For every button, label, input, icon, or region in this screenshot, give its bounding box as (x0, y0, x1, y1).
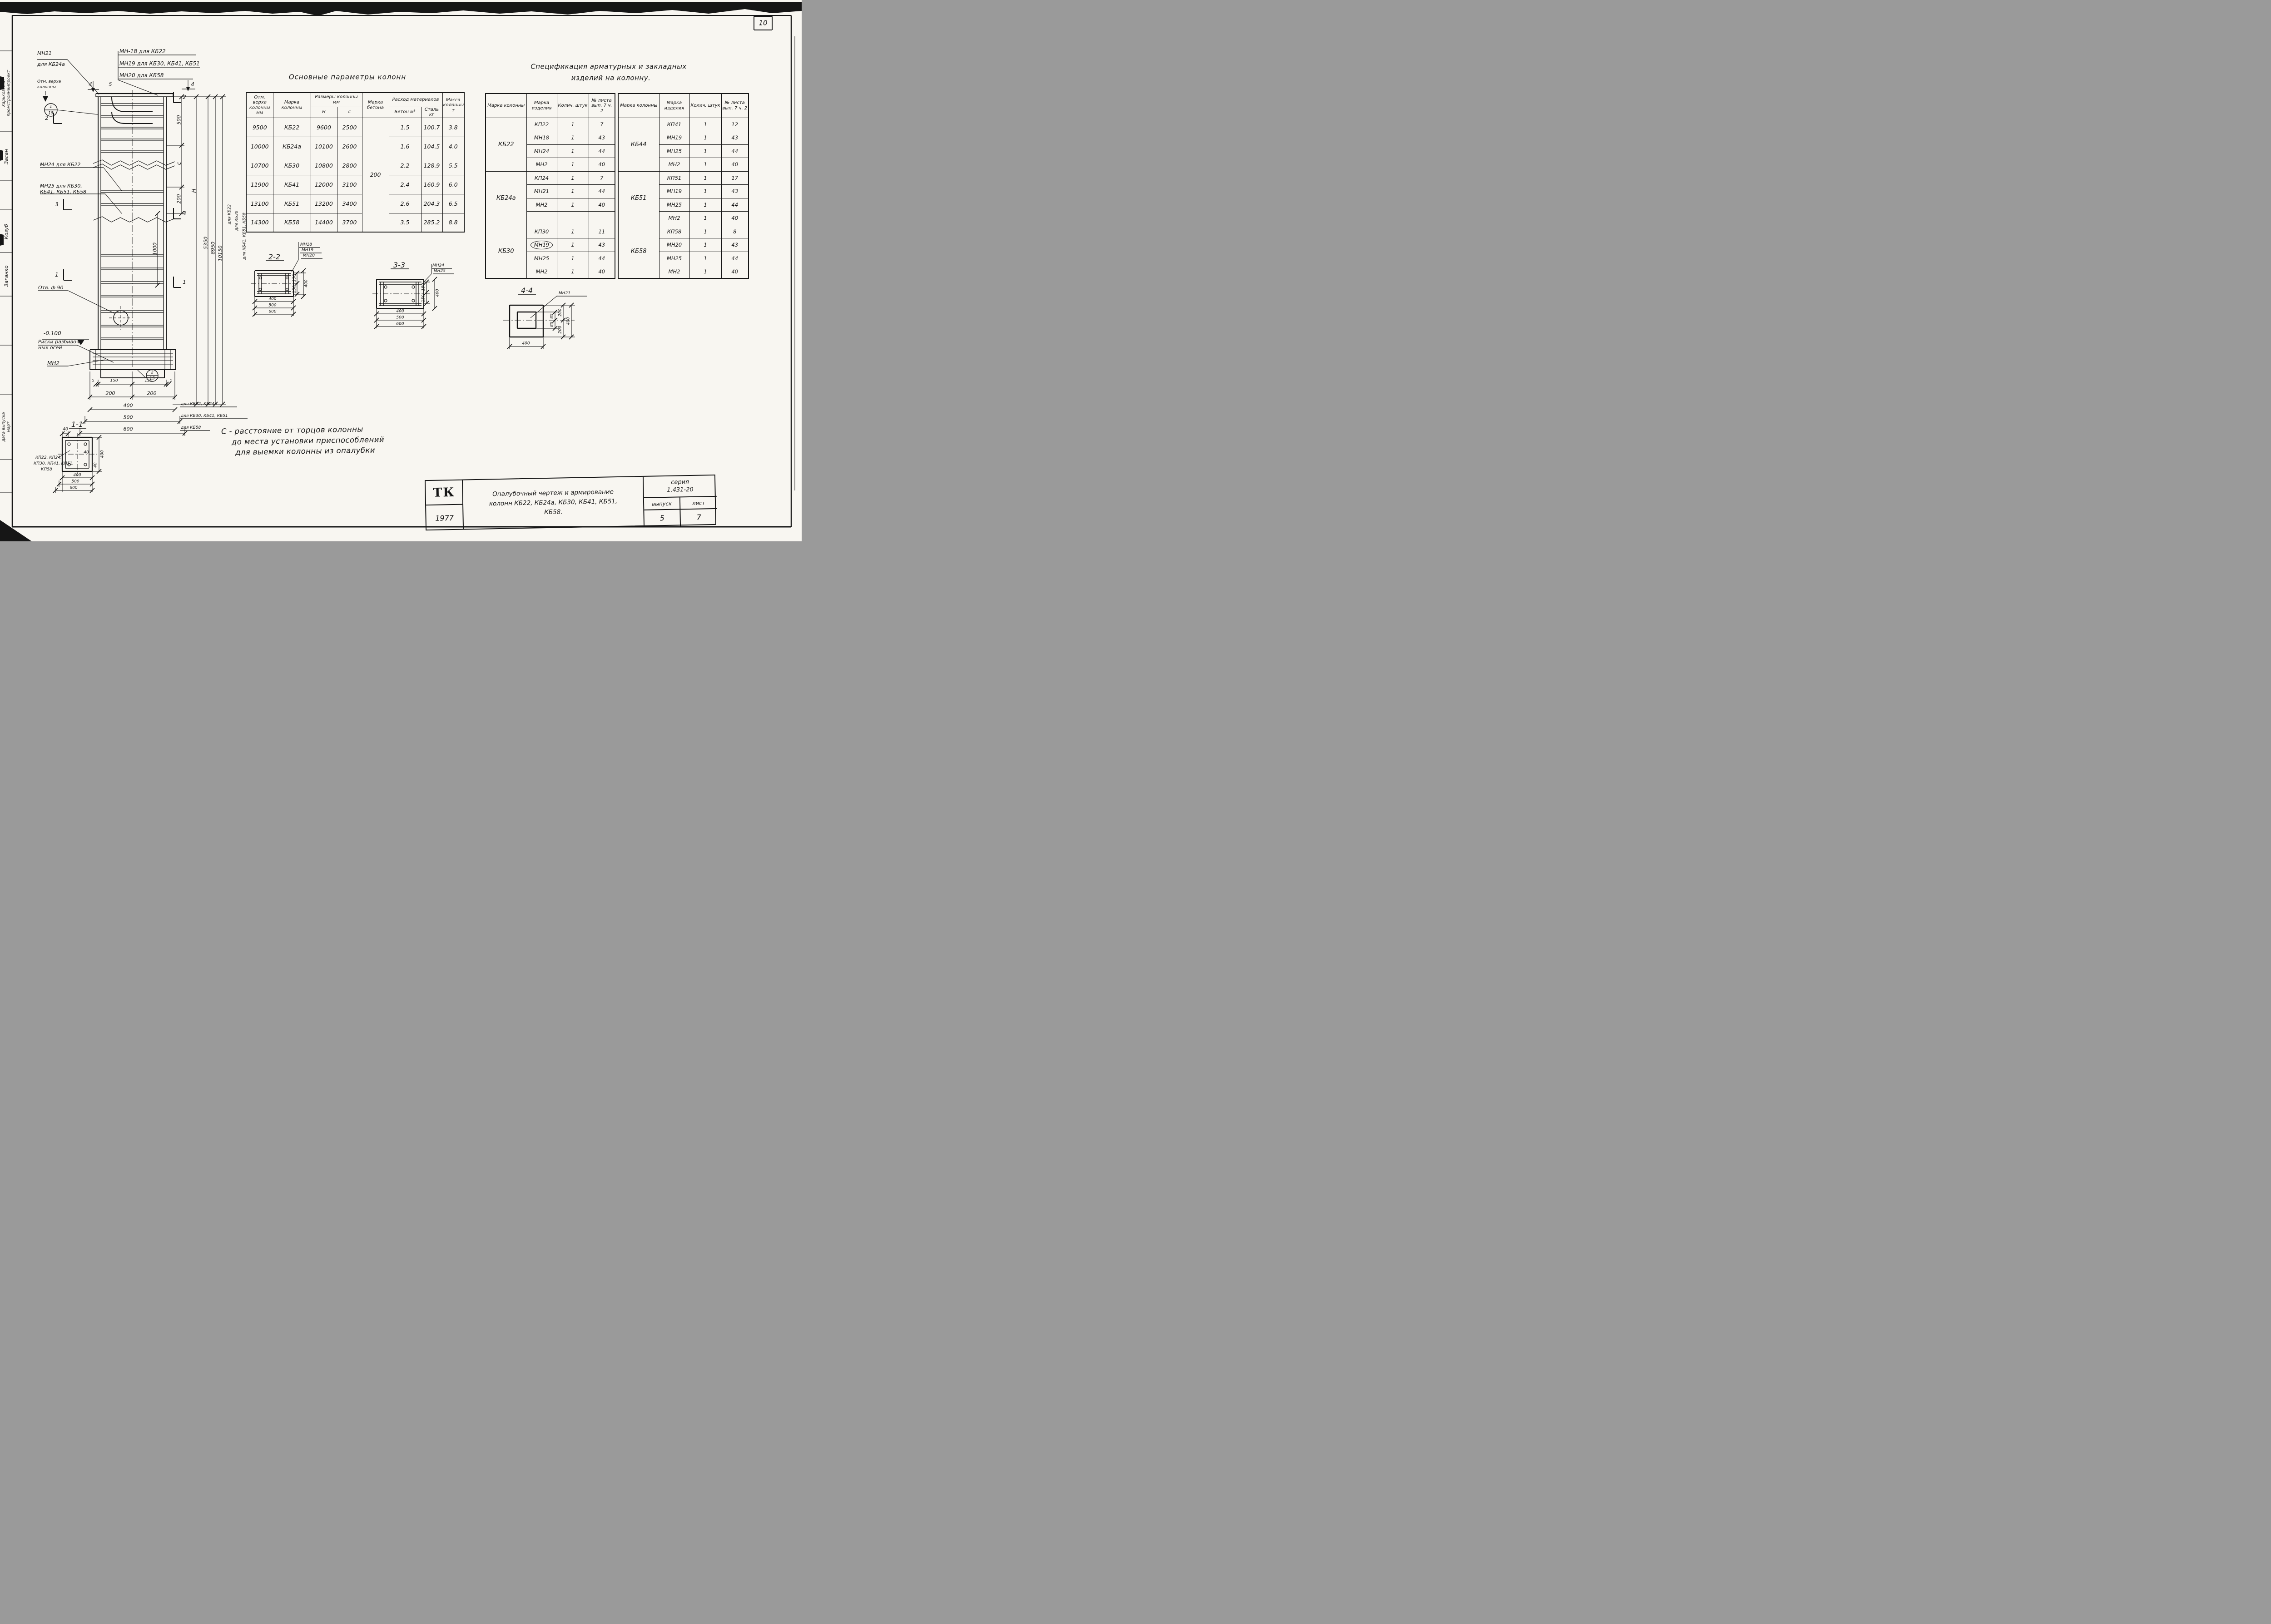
spec-title-1: Спецификация арматурных и закладных (531, 64, 687, 70)
dim-note-kb22: для КБ22 (228, 204, 232, 224)
spec-table-left: Марка колонны Марка изделия Колич. штук … (485, 93, 615, 279)
section44-dim-400b: 400 (522, 342, 530, 346)
params-cell: 2.6 (389, 194, 421, 213)
spec-cell: 1 (557, 185, 589, 198)
spec-h-sheet-2: № листа вып. 7 ч. 2 (721, 94, 749, 118)
params-cell: 13100 (246, 194, 273, 213)
section22-dim-150b: 150 (293, 285, 297, 293)
spec-cell (589, 212, 615, 225)
section11-dim-400r: 400 (101, 450, 105, 458)
dim-10150: 10150 (218, 246, 223, 262)
params-cell: КБ58 (273, 213, 311, 232)
params-cell: 10000 (246, 137, 273, 156)
params-cell: 128.9 (421, 156, 442, 175)
dim-200-left: 200 (106, 391, 115, 396)
section44-callout-mn21: МН21 (559, 292, 570, 296)
section44-dim-200a: 200 (559, 308, 563, 316)
spec-cell: 43 (721, 185, 749, 198)
params-cell: 2.2 (389, 156, 421, 175)
params-cell: 10700 (246, 156, 273, 175)
series-label: серия (671, 479, 689, 487)
params-cell: 8.8 (442, 213, 464, 232)
spec-cell: 1 (689, 238, 721, 252)
spec-cell: МН2 (659, 265, 689, 279)
dim-200: 200 (177, 194, 182, 204)
stamp-org-line2: промстройниипроект (7, 70, 11, 116)
title-block-logo-cell: ТК 1977 (426, 480, 464, 530)
callout-axis-marks-1: Риски разбивоч- (38, 339, 81, 344)
section-1-1-title: 1-1 (71, 421, 83, 428)
spec-h-qty: Колич. штук (557, 94, 589, 118)
spec-title-2: изделий на колонну. (571, 75, 651, 82)
params-cell: 12000 (311, 175, 337, 194)
detail-bubble-1-sheet: 15 (48, 112, 53, 116)
dim-500-base: 500 (124, 415, 133, 420)
spec-h-qty-2: Колич. штук (689, 94, 721, 118)
spec-h-col-2: Марка колонны (618, 94, 659, 118)
section11-dim-40a: 40 (63, 428, 68, 432)
spec-cell: МН2 (526, 158, 557, 172)
spec-cell: 1 (557, 238, 589, 252)
callout-mn25-for-2: КБ41, КБ51, КБ58 (40, 189, 86, 194)
dim-600-base: 600 (124, 427, 133, 432)
section-2-2-title: 2-2 (268, 253, 280, 261)
section-mark-3-left: 3 (55, 202, 59, 207)
spec-cell: 40 (589, 198, 615, 212)
section-mark-1-right: 1 (183, 279, 186, 285)
callout-mn2: МН2 (47, 361, 60, 366)
section22-callout-mn20: МН20 (303, 254, 315, 258)
dim-200-right: 200 (147, 391, 157, 396)
spec-row: КБ44КП41112 (618, 118, 749, 131)
spec-cell: 1 (689, 185, 721, 198)
vypusk-value-cell: 5 (644, 510, 681, 527)
params-cell: 6.0 (442, 175, 464, 194)
section22-dim-400: 400 (268, 297, 276, 302)
section11-dim-600: 600 (69, 486, 77, 490)
params-h-H: Н (311, 107, 337, 118)
section22-callout-mn19: МН19 (302, 248, 313, 253)
section33-dim-600: 600 (396, 322, 404, 327)
params-cell: 160.9 (421, 175, 442, 194)
spec-cell: 1 (689, 212, 721, 225)
params-cell: 100.7 (421, 118, 442, 137)
spec-cell: КП58 (659, 225, 689, 238)
section11-label-1: КП22, КП24, (35, 456, 62, 460)
spec-cell: МН25 (526, 252, 557, 265)
callout-axis-marks-2: ных осей (38, 345, 62, 350)
spec-cell: 1 (689, 198, 721, 212)
spec-cell: МН25 (659, 144, 689, 158)
params-h-rashod: Расход материалов (389, 93, 442, 107)
spec-cell: МН19 (526, 238, 557, 252)
section11-label-2: КП30, КП41, КП51, (34, 462, 74, 466)
spec-cell: МН20 (659, 238, 689, 252)
params-cell: 10800 (311, 156, 337, 175)
stamp-name-2: Заганко (4, 266, 9, 287)
params-cell: КБ51 (273, 194, 311, 213)
spec-cell: 1 (689, 131, 721, 145)
stamp-footer-value: март (7, 421, 11, 432)
dim-500: 500 (177, 115, 182, 125)
level-mark-value: -0.100 (44, 331, 61, 336)
org-logo: ТК (426, 480, 462, 506)
params-cell: 2500 (337, 118, 362, 137)
params-cell: 3.8 (442, 118, 464, 137)
title-block-year: 1977 (426, 505, 463, 532)
dim-c: с (176, 162, 182, 165)
spec-cell: МН25 (659, 198, 689, 212)
spec-row: КБ30КП30111 (486, 225, 615, 238)
stamp-org-line1: Харьковский (2, 79, 6, 107)
section11-dim-400: 400 (73, 474, 81, 478)
spec-h-item-2: Марка изделия (659, 94, 689, 118)
section-4-4-title: 4-4 (521, 287, 533, 294)
label-top-elevation-2: колонны (37, 85, 56, 89)
spec-row: КБ58КП5818 (618, 225, 749, 238)
circled-item-mark: МН19 (531, 241, 553, 249)
spec-cell: 1 (557, 131, 589, 145)
mark-5: 5 (109, 82, 112, 87)
spec-h-item: Марка изделия (526, 94, 557, 118)
params-h-massa: Масса колонны т (442, 93, 464, 118)
spec-cell: МН19 (659, 131, 689, 145)
title-block: ТК 1977 Опалубочный чертеж и армирование… (425, 475, 716, 530)
spec-cell: 17 (721, 171, 749, 185)
params-cell: 13200 (311, 194, 337, 213)
note-line-1: С - расстояние от торцов колонны (221, 425, 363, 436)
spec-cell: КП24 (526, 171, 557, 185)
params-table-title: Основные параметры колонн (289, 74, 406, 81)
section33-dim-400r: 400 (436, 289, 440, 297)
spec-cell: 40 (589, 158, 615, 172)
spec-cell: 1 (689, 118, 721, 131)
callout-mn21: МН21 (37, 51, 52, 56)
note-line-3: для выемки колонны из опалубки (235, 446, 375, 457)
spec-cell: МН24 (526, 144, 557, 158)
section11-dim-40c: 40 (94, 462, 98, 467)
spec-cell: 1 (557, 118, 589, 131)
params-cell: 5.5 (442, 156, 464, 175)
spec-group-label: КБ44 (618, 118, 659, 171)
stamp-footer-label: дата выпуска (2, 412, 6, 442)
spec-row: КБ22КП2217 (486, 118, 615, 131)
spec-row: КБ24аКП2417 (486, 171, 615, 185)
spec-cell: КП51 (659, 171, 689, 185)
callout-hole-d90: Отв. ф 90 (38, 285, 63, 290)
spec-group-label: КБ30 (486, 225, 526, 278)
section22-dim-400r: 400 (305, 279, 309, 287)
params-row: 11900КБ411200031002.4160.96.0 (246, 175, 464, 194)
spec-cell: 7 (589, 118, 615, 131)
params-cell: 1.6 (389, 137, 421, 156)
params-row: 14300КБ581440037003.5285.28.8 (246, 213, 464, 232)
section44-dim-85b: 85 (550, 322, 555, 327)
params-cell: 2.4 (389, 175, 421, 194)
spec-cell: 43 (721, 238, 749, 252)
vypusk-label-cell: выпуск (644, 497, 681, 510)
spec-cell: 40 (589, 265, 615, 279)
dim-note-500: для КБ30, КБ41, КБ51 (181, 414, 228, 418)
section-3-3-title: 3-3 (393, 262, 405, 269)
params-cell: КБ24а (273, 137, 311, 156)
params-cell: 204.3 (421, 194, 442, 213)
section-mark-3-right: 3 (183, 211, 186, 216)
stamp-name-1: Козуб (4, 224, 9, 239)
params-cell: 10100 (311, 137, 337, 156)
spec-cell (526, 212, 557, 225)
spec-cell: МН19 (659, 185, 689, 198)
section33-callout-mn25: МН25 (434, 269, 446, 273)
note-line-2: до места установки приспособлений (232, 435, 384, 446)
spec-cell: МН2 (659, 212, 689, 225)
section22-dim-150a: 150 (293, 274, 297, 282)
params-h-c: с (337, 107, 362, 118)
params-h-razm: Размеры колонны мм (311, 93, 362, 107)
spec-cell: 44 (589, 144, 615, 158)
dim-note-kb30: для КБ30 (235, 211, 239, 231)
callout-mn21-for: для КБ24а (37, 62, 65, 67)
params-h-marka: Марка колонны (273, 93, 311, 118)
spec-cell: МН18 (526, 131, 557, 145)
spec-cell: МН2 (526, 265, 557, 279)
params-cell: КБ22 (273, 118, 311, 137)
spec-cell: 44 (589, 252, 615, 265)
spec-cell: МН2 (526, 198, 557, 212)
params-cell: 14300 (246, 213, 273, 232)
section11-dim-500: 500 (71, 480, 79, 484)
stamp-signature: Засан (4, 149, 9, 164)
section11-label-3: КП58 (41, 468, 52, 472)
params-row: 10700КБ301080028002.2128.95.5 (246, 156, 464, 175)
label-top-elevation-1: Отм. верха (37, 80, 61, 84)
spec-cell: 44 (721, 144, 749, 158)
params-cell: 9500 (246, 118, 273, 137)
dim-8950: 8950 (211, 242, 216, 254)
section33-dim-400: 400 (396, 310, 404, 314)
spec-cell: 1 (689, 265, 721, 279)
series-value: 1.431-20 (667, 486, 694, 494)
spec-cell: 1 (557, 144, 589, 158)
section-mark-1-left: 1 (55, 272, 59, 277)
spec-cell: 1 (557, 252, 589, 265)
params-cell: 4.0 (442, 137, 464, 156)
sheet-number: 10 (759, 20, 767, 27)
spec-h-col: Марка колонны (486, 94, 526, 118)
spec-cell: 44 (721, 198, 749, 212)
spec-cell: 43 (589, 131, 615, 145)
spec-cell: 1 (689, 252, 721, 265)
drawing-sheet: 10 Харьковский промстройниипроект Засан … (0, 0, 802, 541)
callout-mn19-for: МН19 для КБ30, КБ41, КБ51 (119, 61, 200, 66)
params-cell: 104.5 (421, 137, 442, 156)
spec-cell: 40 (721, 158, 749, 172)
spec-cell: КП22 (526, 118, 557, 131)
section-mark-2-left: 2 (45, 115, 49, 121)
spec-cell: 1 (557, 265, 589, 279)
params-cell: КБ30 (273, 156, 311, 175)
mark-4-right: 4 (191, 82, 194, 87)
params-cell: 3100 (337, 175, 362, 194)
spec-group-label: КБ58 (618, 225, 659, 278)
params-h-otm: Отм. верха колонны мм (246, 93, 273, 118)
section33-dim-500: 500 (396, 316, 404, 320)
spec-cell: 40 (721, 212, 749, 225)
params-table: Отм. верха колонны мм Марка колонны Разм… (246, 92, 465, 233)
spec-cell: 1 (557, 171, 589, 185)
section44-dim-400r: 400 (567, 317, 571, 325)
section33-dim-150a: 150 (422, 283, 426, 291)
dim-400-base: 400 (124, 403, 133, 408)
section22-callout-mn18: МН18 (300, 243, 312, 247)
spec-cell: КП30 (526, 225, 557, 238)
spec-cell: 43 (721, 131, 749, 145)
dim-150-left: 150 (110, 379, 118, 383)
params-cell: 14400 (311, 213, 337, 232)
dim-5-right: 5 (170, 379, 173, 383)
spec-cell: 1 (557, 158, 589, 172)
dim-note-400: для КБ22, КБ24а (181, 402, 217, 406)
section-mark-2-right: 2 (183, 94, 186, 100)
params-h-beton2: Бетон м³ (389, 107, 421, 118)
section22-dim-600: 600 (268, 310, 276, 314)
section33-dim-150b: 150 (422, 294, 426, 302)
spec-row: КБ51КП51117 (618, 171, 749, 185)
series-cell: серия 1.431-20 (644, 475, 717, 498)
params-cell: 285.2 (421, 213, 442, 232)
callout-mn24-for: МН24 для КБ22 (40, 162, 80, 167)
params-row: 10000КБ24а1010026001.6104.54.0 (246, 137, 464, 156)
dim-1000: 1000 (153, 243, 158, 255)
params-cell: 2600 (337, 137, 362, 156)
spec-group-label: КБ51 (618, 171, 659, 225)
detail-bubble-1-num: 1 (50, 105, 52, 109)
spec-cell: 40 (721, 265, 749, 279)
spec-cell: 12 (721, 118, 749, 131)
spec-cell: 1 (557, 198, 589, 212)
dim-5-left: 5 (92, 379, 94, 383)
spec-cell: 7 (589, 171, 615, 185)
drawing-title-2: колонн КБ22, КБ24а, КБ30, КБ41, КБ51, (489, 497, 618, 509)
spec-h-sheet: № листа вып. 7 ч. 2 (589, 94, 615, 118)
params-cell: 9600 (311, 118, 337, 137)
params-beton-value: 200 (362, 118, 389, 232)
dim-5350: 5350 (203, 237, 208, 249)
spec-cell: КП41 (659, 118, 689, 131)
detail-bubble-2-num: 2 (151, 371, 154, 375)
callout-mn20-for: МН20 для КБ58 (119, 73, 164, 78)
section44-dim-85a: 85 (550, 313, 555, 318)
callout-mn18-for: МН-18 для КБ22 (119, 49, 166, 54)
section22-dim-500: 500 (268, 304, 276, 308)
params-cell: 3700 (337, 213, 362, 232)
params-row: 9500КБ22960025002001.5100.73.8 (246, 118, 464, 137)
spec-cell: 8 (721, 225, 749, 238)
spec-cell: 44 (721, 252, 749, 265)
title-block-title: Опалубочный чертеж и армирование колонн … (463, 477, 645, 529)
spec-cell: 1 (557, 225, 589, 238)
spec-cell: 1 (689, 144, 721, 158)
spec-cell: 43 (589, 238, 615, 252)
callout-mn25-for-1: МН25 для КБ30, (40, 183, 82, 188)
mark-4-left: 4 (89, 82, 92, 87)
dim-H: Н (191, 188, 197, 193)
section11-dim-40b: 40 (84, 451, 89, 455)
spec-table-right: Марка колонны Марка изделия Колич. штук … (618, 93, 749, 279)
params-cell: 3.5 (389, 213, 421, 232)
params-h-beton: Марка бетона (362, 93, 389, 118)
spec-cell: МН2 (659, 158, 689, 172)
params-cell: 3400 (337, 194, 362, 213)
dim-note-600: для КБ58 (181, 426, 201, 430)
spec-cell: 1 (689, 171, 721, 185)
spec-cell: 44 (589, 185, 615, 198)
params-row: 13100КБ511320034002.6204.36.5 (246, 194, 464, 213)
spec-cell: 1 (689, 158, 721, 172)
spec-cell (557, 212, 589, 225)
params-cell: 2800 (337, 156, 362, 175)
drawing-title-3: КБ58. (544, 507, 563, 517)
spec-cell: МН25 (659, 252, 689, 265)
params-cell: 1.5 (389, 118, 421, 137)
spec-group-label: КБ22 (486, 118, 526, 171)
params-cell: 11900 (246, 175, 273, 194)
params-cell: КБ41 (273, 175, 311, 194)
detail-bubble-2-sheet: 15 (149, 377, 154, 381)
params-h-stal: Сталь кг (421, 107, 442, 118)
spec-cell: 11 (589, 225, 615, 238)
spec-group-label: КБ24а (486, 171, 526, 225)
section33-callout-mn24: МН24 (432, 264, 444, 268)
section44-dim-200b: 200 (559, 326, 563, 333)
list-label-cell: лист (680, 497, 717, 510)
params-cell: 6.5 (442, 194, 464, 213)
list-value-cell: 7 (680, 509, 717, 527)
spec-cell: МН21 (526, 185, 557, 198)
spec-cell: 1 (689, 225, 721, 238)
